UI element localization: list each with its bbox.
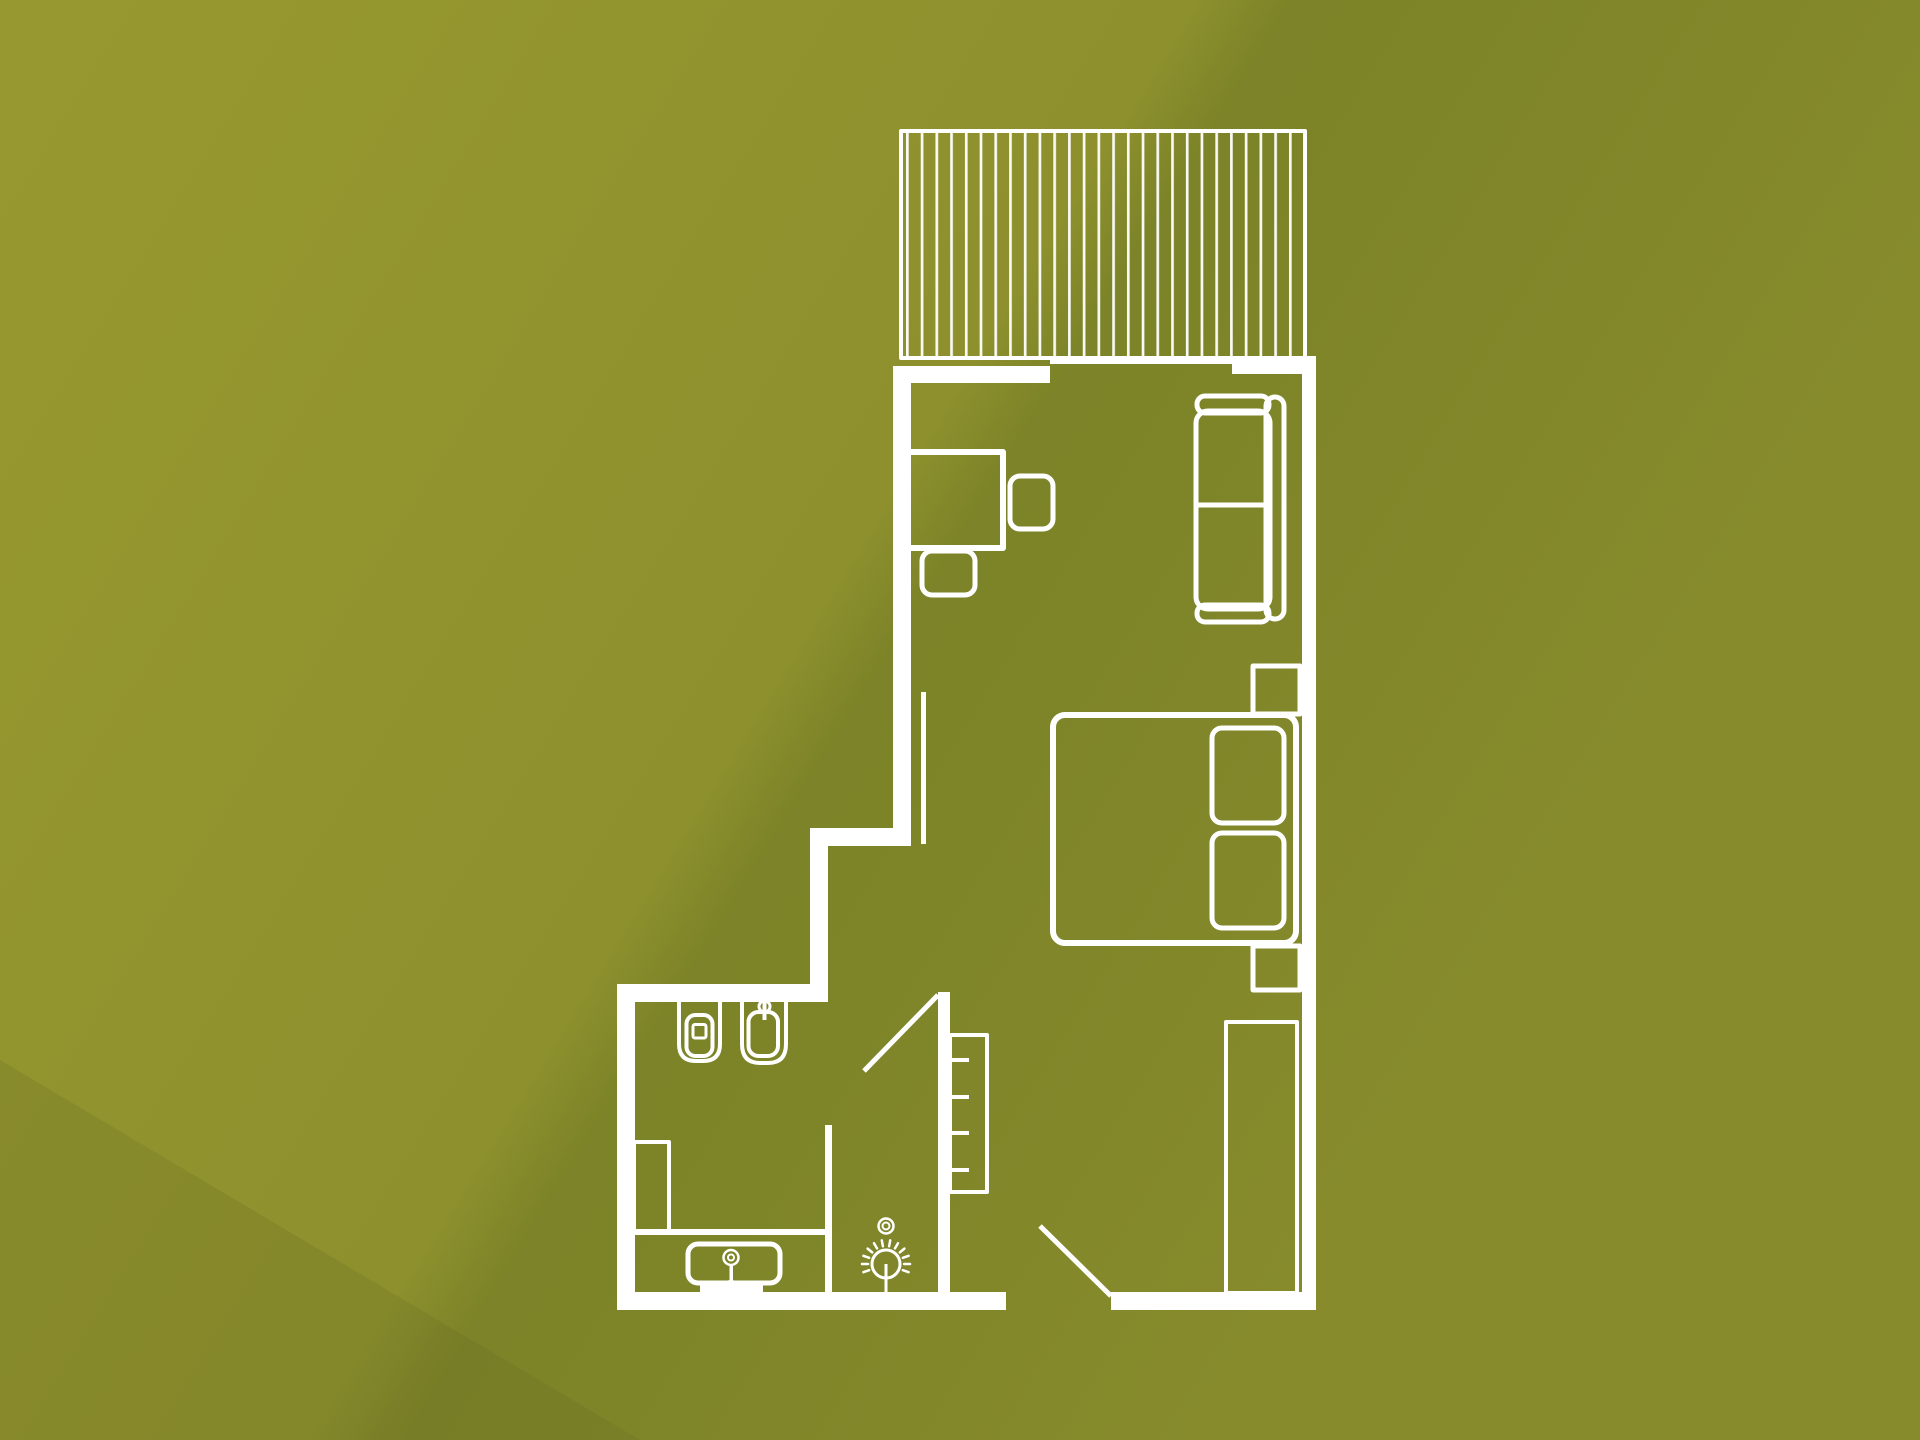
floor-lamp-stem (885, 1264, 888, 1296)
terrace-decking-hatch (906, 133, 1302, 357)
terrace (901, 131, 1305, 358)
washbasin-faucet-stem (763, 999, 767, 1020)
bathroom-top-wall (617, 984, 828, 1002)
terrace-window-sill (1050, 357, 1232, 364)
left-wall-mid (810, 828, 828, 1002)
left-wall-upper (893, 366, 911, 846)
vanity-wall-nub (700, 1286, 763, 1293)
upper-partition-line (921, 692, 926, 844)
floor-plan (0, 0, 1920, 1440)
right-wall (1302, 356, 1316, 1310)
top-wall-left (893, 366, 1050, 383)
floor-plan-canvas (0, 0, 1920, 1440)
bottom-wall-left (617, 1292, 1006, 1310)
vanity-partition (825, 1125, 832, 1292)
